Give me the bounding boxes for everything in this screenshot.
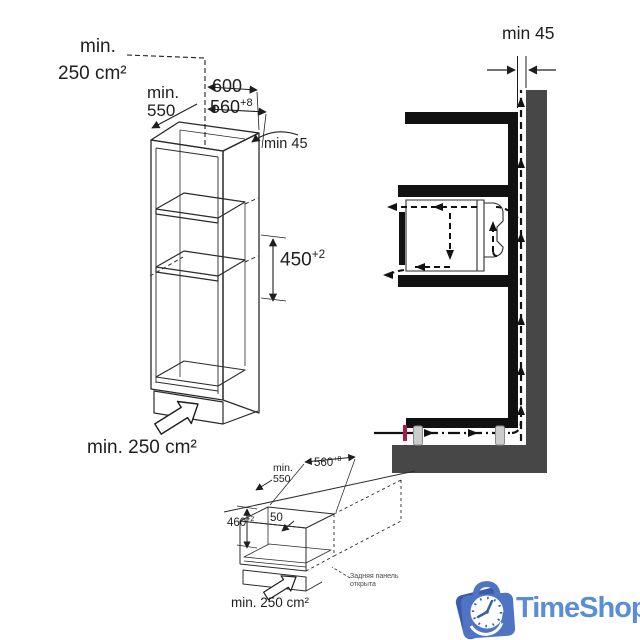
shelf-lower <box>156 251 245 281</box>
bottom-vent-area-label: min. 250 cm² <box>87 437 197 459</box>
compact-vent-area-label: min. 250 cm² <box>231 595 309 610</box>
top-vent-area-label: 250 cm² <box>58 63 127 85</box>
cabinet-width-label: 600 <box>212 76 242 97</box>
shelf-upper <box>156 193 245 223</box>
compact-width-label: 560+8 <box>314 455 341 469</box>
cabinet-niche-width-label: 560+8 <box>210 97 253 118</box>
compact-front-gap-label: 50 <box>270 512 283 524</box>
compact-height-label: 460+2 <box>227 515 254 529</box>
airflow-arrows <box>374 90 525 441</box>
niche-front-frame <box>399 212 405 265</box>
airflow-section-drawing <box>374 56 556 473</box>
top-vent-min-label: min. <box>80 36 116 58</box>
back-panel-note: Задняя панель открыта <box>350 573 399 588</box>
diagram-line-art <box>0 0 640 640</box>
logo-text: TimeShop <box>516 592 640 625</box>
airflow-arrowheads <box>383 97 525 437</box>
cabinet-side-face <box>223 133 259 413</box>
timeshop-logo <box>454 583 515 640</box>
compact-depth-label: min. 550 <box>273 463 293 486</box>
installation-diagram-page: min. 250 cm² min. 550 600 560+8 min 45 4… <box>0 0 640 640</box>
niche-height-label: 450+2 <box>280 248 325 271</box>
red-marker <box>403 425 407 441</box>
niche-dimension-lines <box>237 457 355 548</box>
cabinet-rear-gap-label: min 45 <box>264 136 308 152</box>
adjustable-foot <box>496 426 505 445</box>
appliance-section <box>406 200 503 271</box>
cabinet-depth-label: min. 550 <box>147 84 179 121</box>
ventilation-arrow-icon <box>155 402 198 435</box>
airflow-rear-gap-label: min 45 <box>502 23 555 44</box>
cabinet-section <box>398 112 518 428</box>
adjustable-foot <box>414 426 423 445</box>
